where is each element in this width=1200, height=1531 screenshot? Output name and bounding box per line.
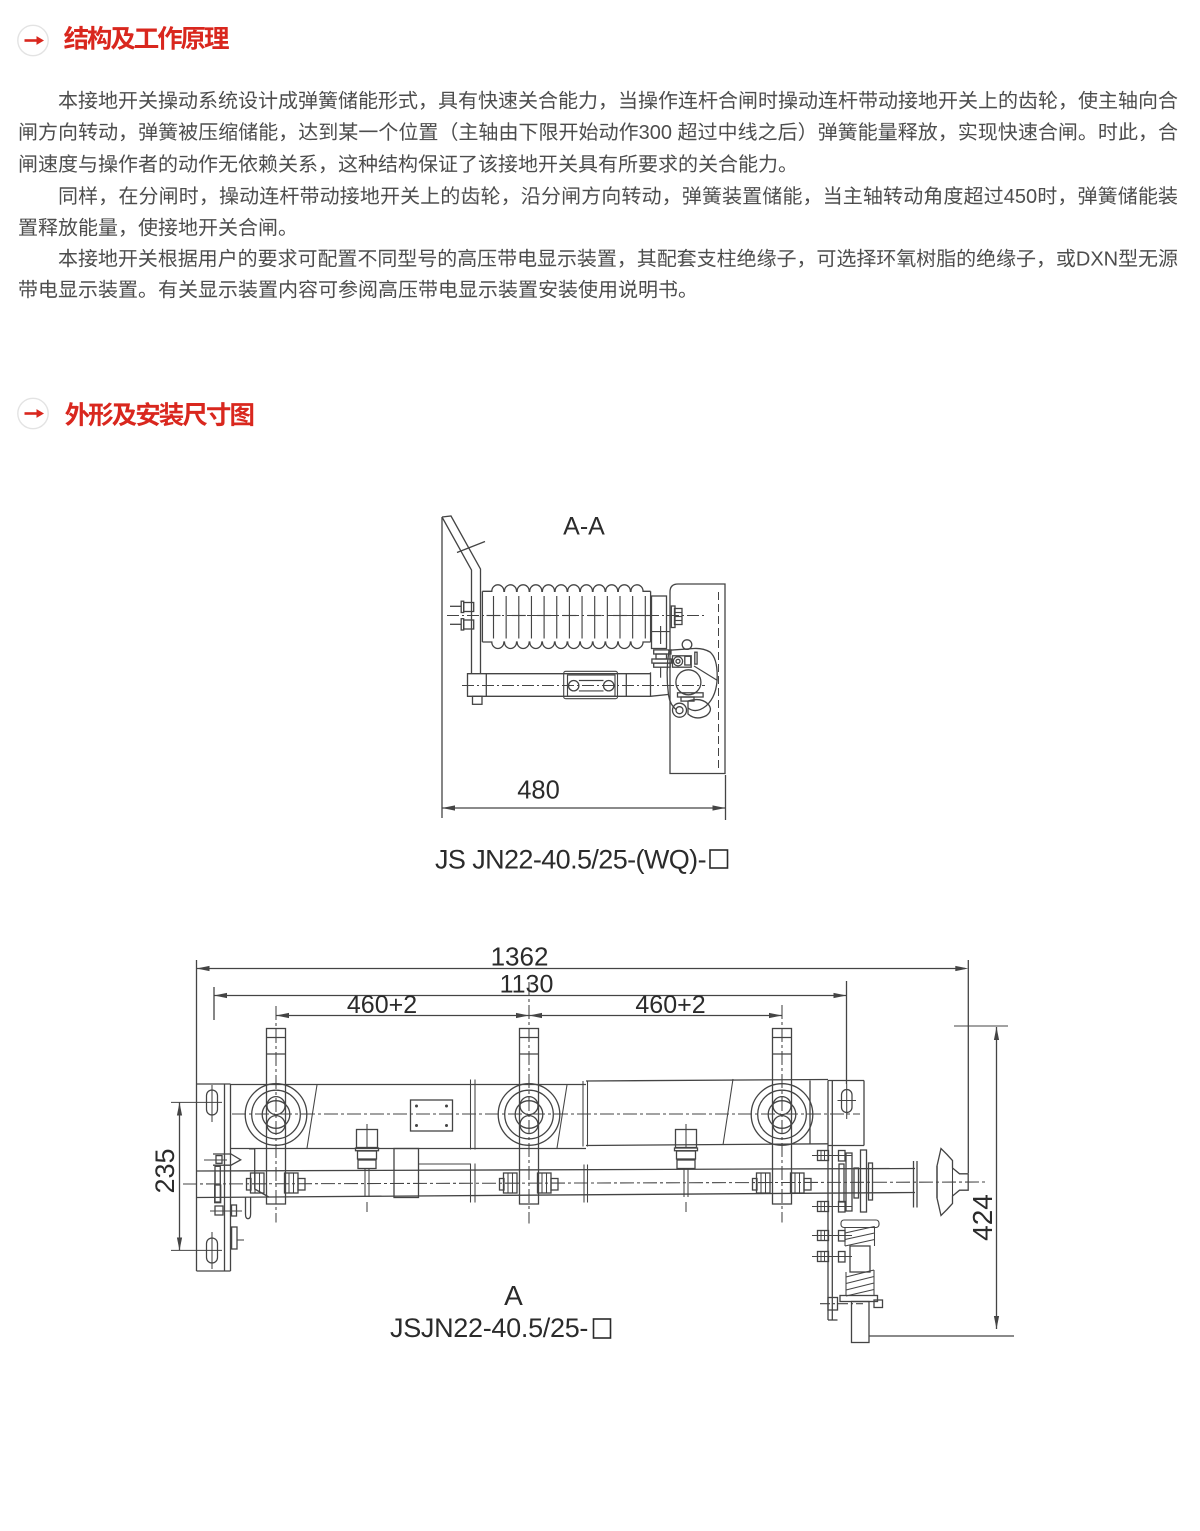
svg-text:300: 300 [639, 122, 672, 144]
svg-text:A: A [504, 1280, 523, 1311]
svg-text:1362: 1362 [491, 942, 549, 972]
svg-text:JS JN22-40.5/25-(WQ)-: JS JN22-40.5/25-(WQ)- [435, 845, 706, 875]
svg-text:480: 480 [517, 777, 560, 805]
svg-text:460+2: 460+2 [635, 991, 705, 1019]
svg-text:235: 235 [150, 1148, 180, 1193]
svg-text:DXN: DXN [1076, 249, 1118, 271]
svg-text:1130: 1130 [500, 971, 554, 999]
svg-text:JSJN22-40.5/25-: JSJN22-40.5/25- [390, 1313, 588, 1343]
svg-text:424: 424 [967, 1194, 998, 1241]
svg-text:460+2: 460+2 [347, 991, 417, 1019]
svg-text:450: 450 [1004, 186, 1037, 208]
svg-text:A-A: A-A [563, 513, 605, 541]
